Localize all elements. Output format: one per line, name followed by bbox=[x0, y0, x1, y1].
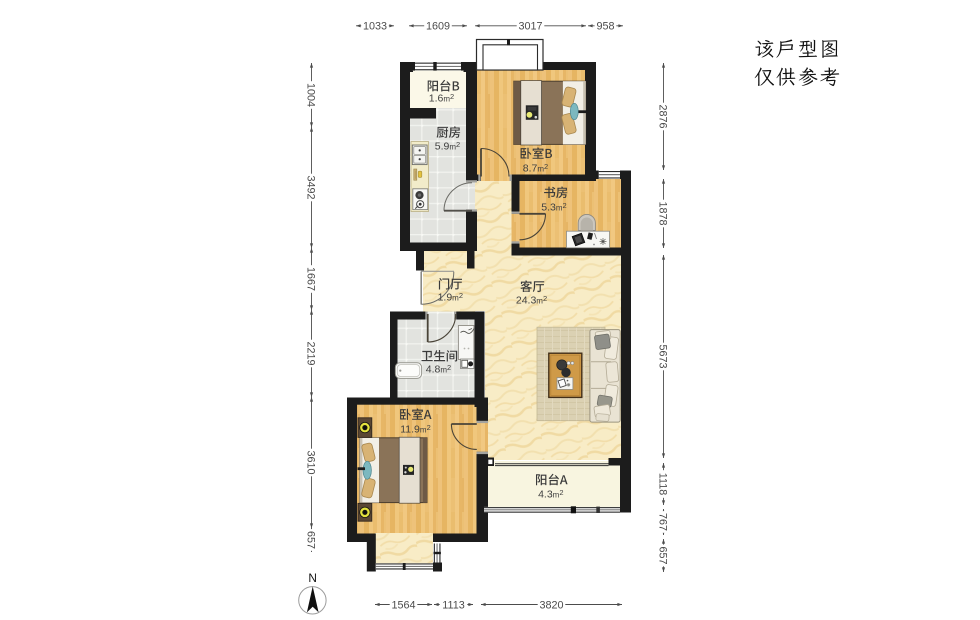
svg-text:5673: 5673 bbox=[657, 344, 669, 368]
svg-text:3610: 3610 bbox=[305, 450, 317, 474]
svg-text:N: N bbox=[308, 571, 317, 585]
svg-text:1609: 1609 bbox=[426, 21, 450, 33]
svg-text:3820: 3820 bbox=[539, 599, 563, 611]
svg-text:657: 657 bbox=[305, 531, 317, 549]
svg-text:3017: 3017 bbox=[518, 21, 542, 33]
svg-text:3492: 3492 bbox=[305, 175, 317, 199]
svg-text:1004: 1004 bbox=[305, 83, 317, 107]
svg-text:1878: 1878 bbox=[657, 201, 669, 225]
svg-text:1113: 1113 bbox=[442, 599, 464, 611]
svg-text:767: 767 bbox=[657, 513, 669, 531]
svg-text:958: 958 bbox=[596, 21, 614, 33]
svg-text:1564: 1564 bbox=[391, 599, 415, 611]
svg-text:1667: 1667 bbox=[305, 267, 317, 291]
svg-text:2876: 2876 bbox=[657, 104, 669, 128]
svg-text:24.3m2: 24.3m2 bbox=[516, 294, 547, 307]
svg-text:657: 657 bbox=[657, 546, 669, 564]
svg-text:1033: 1033 bbox=[363, 21, 387, 33]
svg-text:2219: 2219 bbox=[305, 341, 317, 365]
svg-text:11.9m2: 11.9m2 bbox=[400, 423, 431, 436]
svg-text:1118: 1118 bbox=[657, 473, 669, 495]
